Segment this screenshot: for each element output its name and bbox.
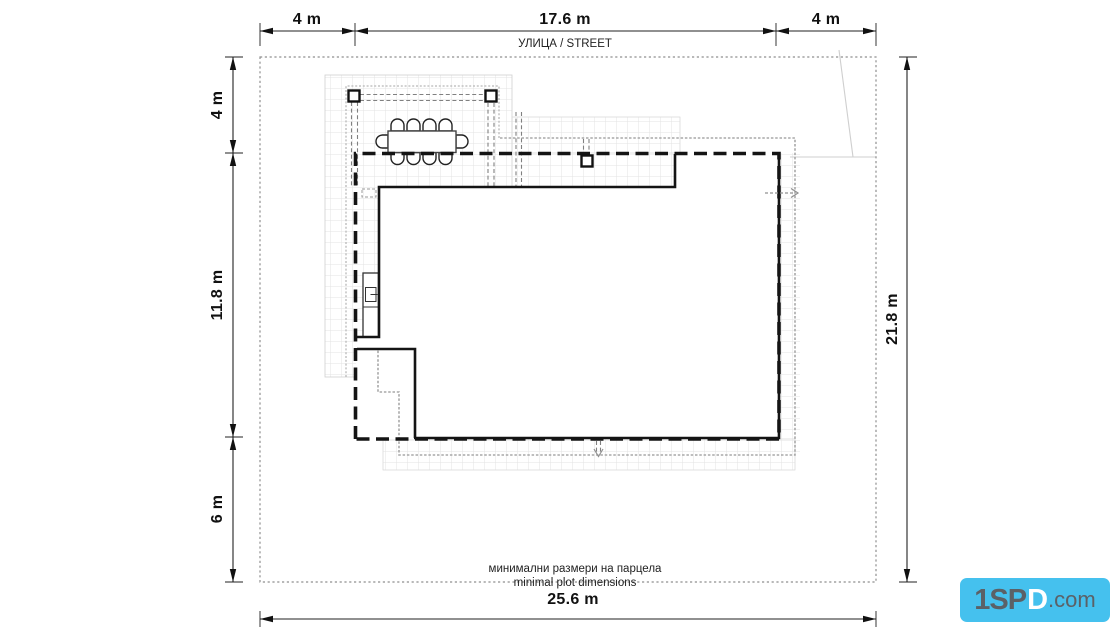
site-plan-canvas: 4 m 17.6 m 4 m 4 m 11.8 m 6 m 21.8 m 25.… (0, 0, 1120, 632)
arrowhead-icon (230, 437, 236, 450)
dimension-label-bottom: 25.6 m (523, 591, 623, 609)
arrowhead-icon (230, 153, 236, 166)
chair (407, 119, 420, 131)
chair (391, 119, 404, 131)
street-label: УЛИЦА / STREET (415, 38, 715, 50)
dimension-label-top-left: 4 m (257, 11, 357, 29)
logo-text-suffix: .com (1048, 587, 1096, 613)
arrowhead-icon (230, 569, 236, 582)
logo-1spd: 1SP D .com (960, 578, 1110, 622)
note-label-english: minimal plot dimensions (425, 577, 725, 589)
dimension-label-top-center: 17.6 m (515, 11, 615, 29)
chair (456, 135, 468, 148)
arrowhead-icon (904, 569, 910, 582)
arrowhead-icon (230, 57, 236, 70)
ground-floor-interior (357, 154, 779, 439)
logo-text-d: D (1027, 584, 1047, 617)
arrowhead-icon (863, 616, 876, 622)
chair (376, 135, 388, 148)
arrowhead-icon (260, 616, 273, 622)
arrowhead-icon (230, 424, 236, 437)
pergola-post (349, 91, 360, 102)
pergola-post (486, 91, 497, 102)
grid-patch-right (779, 153, 800, 455)
pergola-post (582, 156, 593, 167)
dimension-label-right: 21.8 m (884, 269, 904, 369)
counter-outline (363, 273, 379, 337)
chair (439, 119, 452, 131)
site-plan-drawing (0, 0, 1120, 632)
dimension-line-bottom (260, 611, 876, 627)
dimension-label-left-bottom: 6 m (209, 459, 229, 559)
driveway-outline (790, 50, 876, 157)
dimension-label-top-right: 4 m (776, 11, 876, 29)
chair (423, 119, 436, 131)
dimension-label-left-top: 4 m (209, 55, 229, 155)
dimension-label-left-middle: 11.8 m (209, 245, 229, 345)
yard-step-area (356, 349, 415, 439)
grid-patch-top (512, 117, 680, 153)
arrowhead-icon (230, 140, 236, 153)
kitchen-counter (363, 273, 379, 337)
note-label-bulgarian: минимални размери на парцела (425, 563, 725, 575)
dining-table (388, 131, 456, 153)
arrowhead-icon (763, 28, 776, 34)
arrowhead-icon (904, 57, 910, 70)
logo-text-main: 1SP (974, 584, 1026, 617)
